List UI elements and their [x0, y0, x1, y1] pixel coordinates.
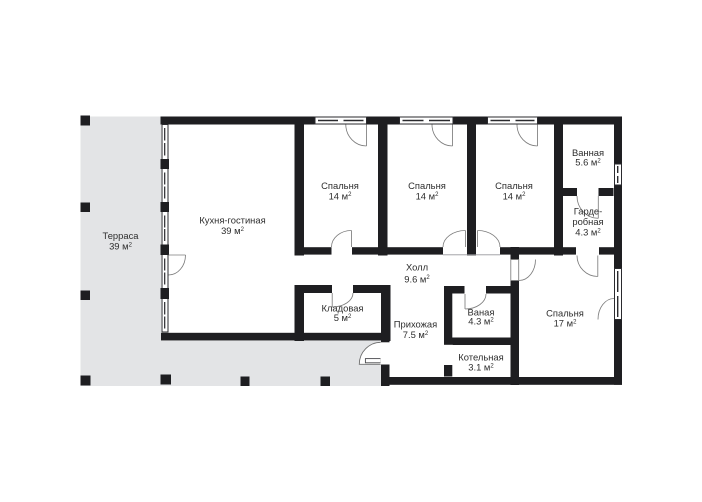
svg-text:Гарде-: Гарде- [574, 205, 603, 216]
svg-text:Холл: Холл [406, 262, 428, 273]
svg-text:робная: робная [572, 216, 603, 227]
svg-text:Кухня-гостиная: Кухня-гостиная [199, 215, 265, 226]
svg-text:Терраса: Терраса [103, 230, 140, 241]
